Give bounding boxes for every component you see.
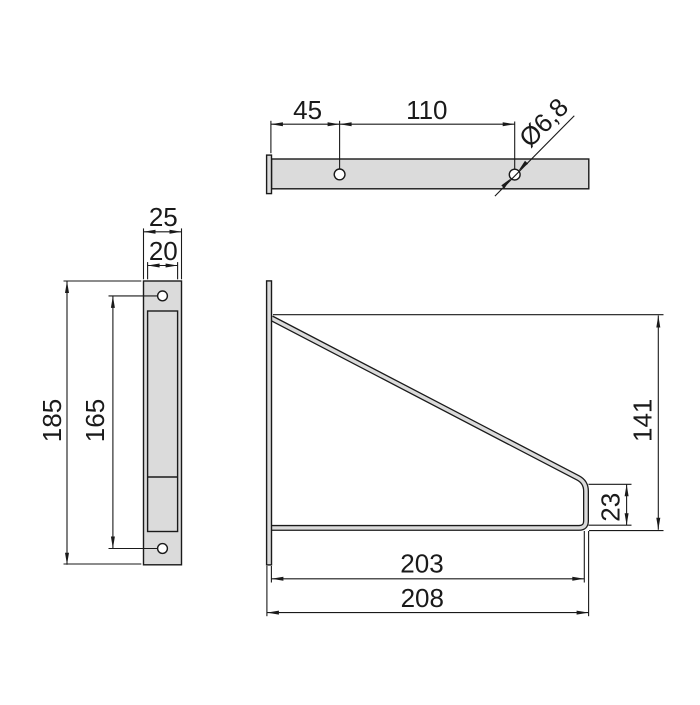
svg-text:23: 23 [596,493,626,522]
svg-text:20: 20 [149,236,178,266]
svg-text:45: 45 [293,95,322,125]
svg-text:165: 165 [80,399,110,442]
svg-text:110: 110 [406,95,447,125]
svg-text:208: 208 [401,583,444,613]
svg-text:141: 141 [627,399,657,442]
svg-text:25: 25 [149,202,178,232]
svg-text:203: 203 [400,549,443,579]
svg-text:185: 185 [37,399,67,442]
